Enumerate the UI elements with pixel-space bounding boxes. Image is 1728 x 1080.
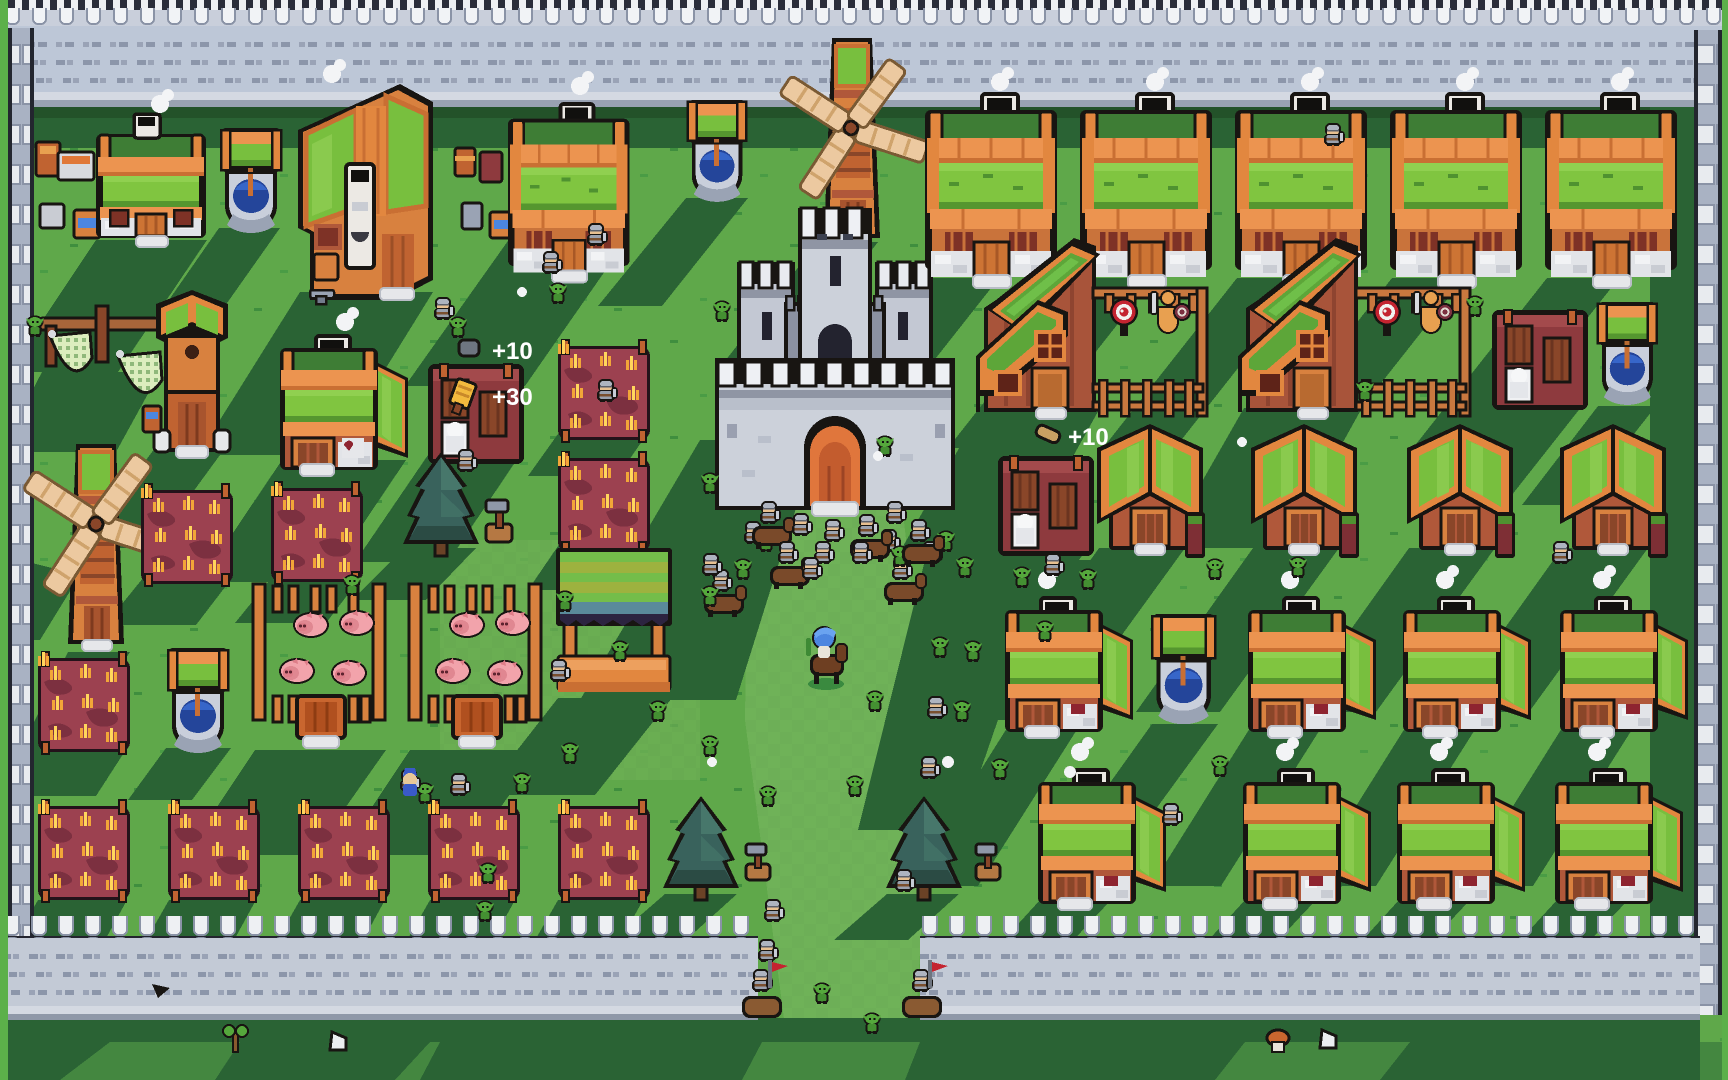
svg-text:+10: +10 [492,338,533,365]
svg-text:+30: +30 [492,384,533,411]
